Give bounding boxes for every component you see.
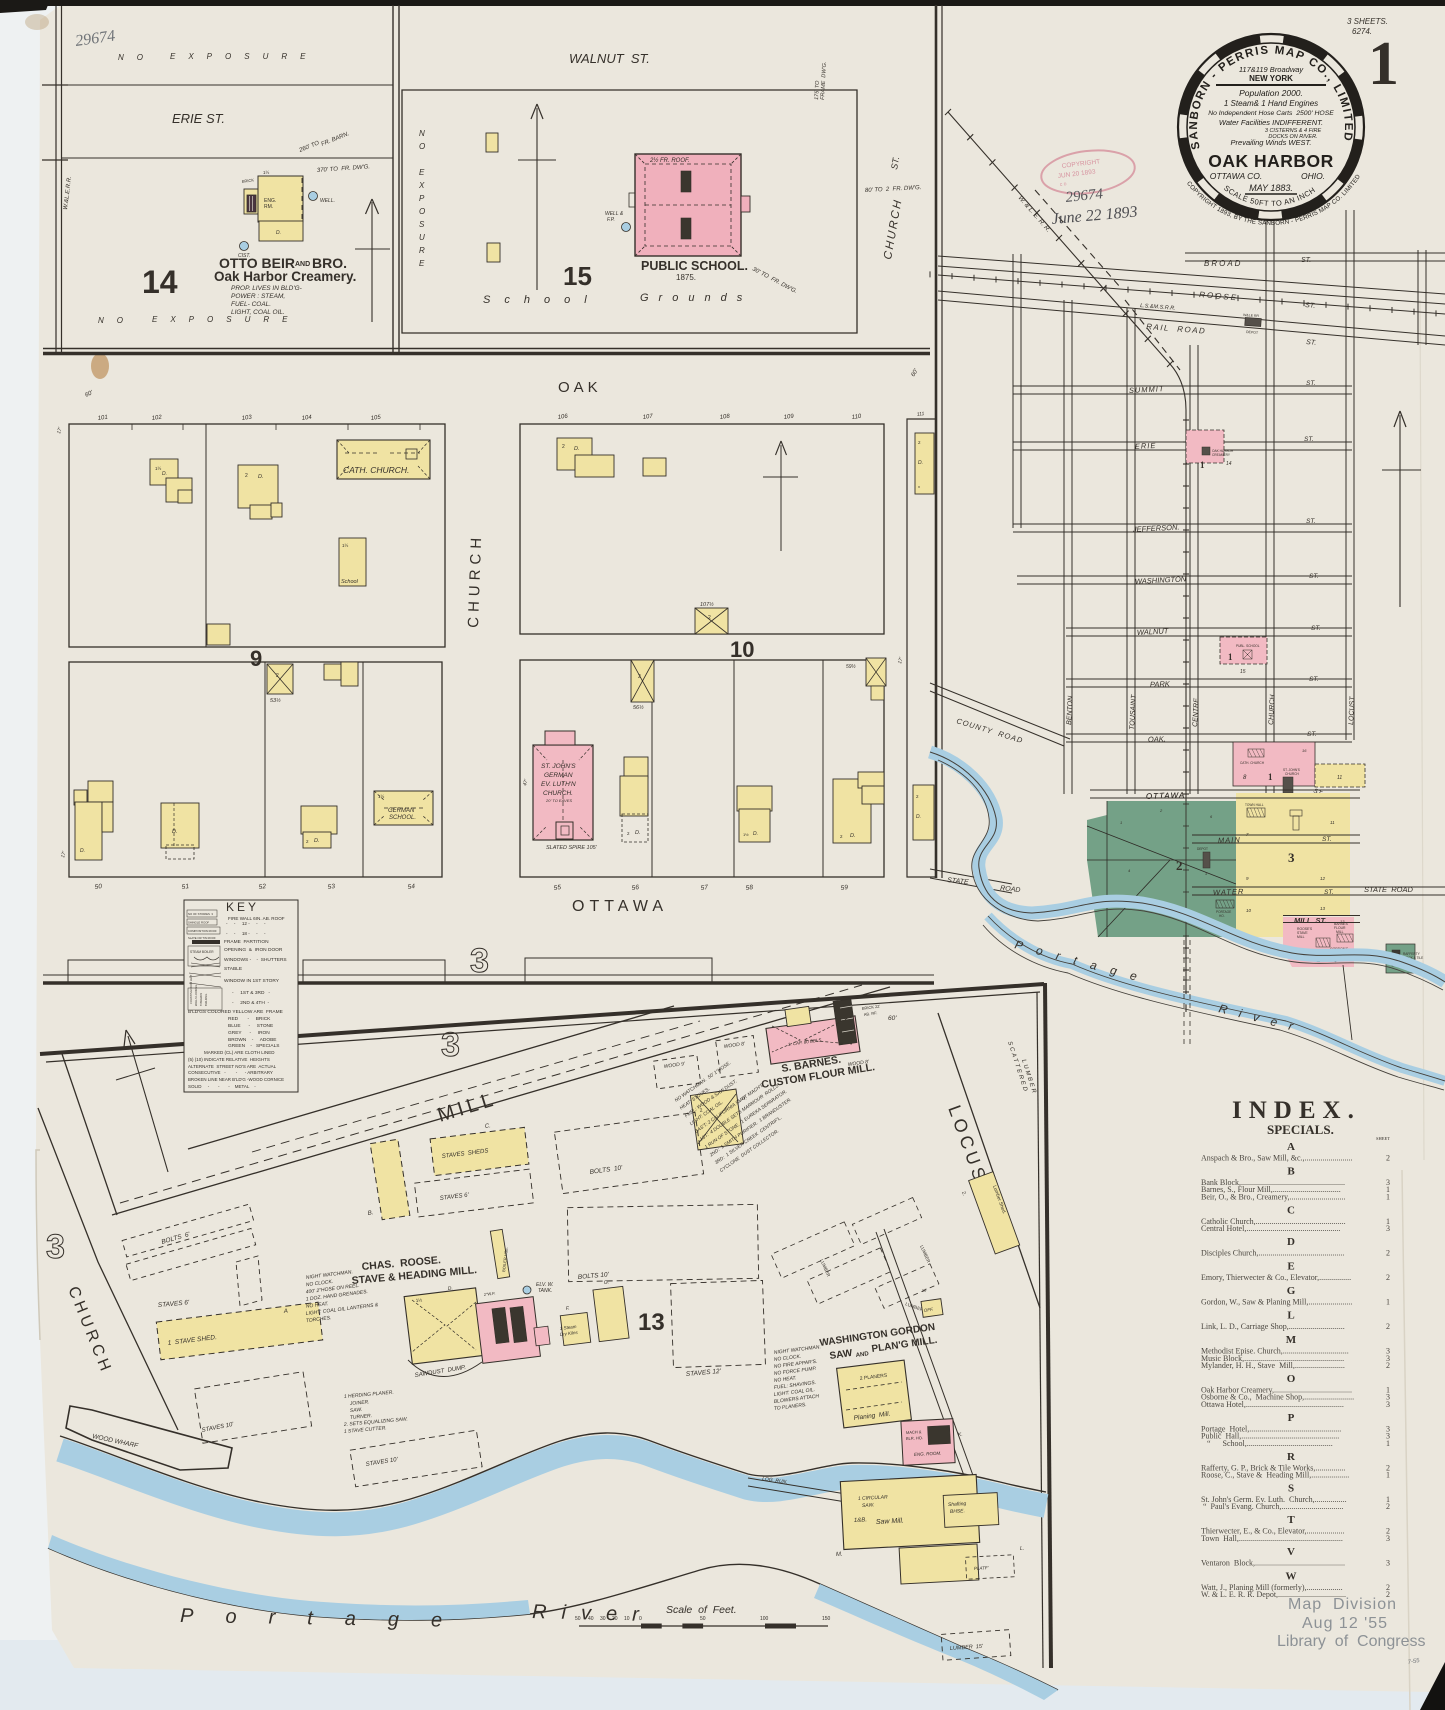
svg-text:0: 0 <box>639 1616 642 1622</box>
svg-text:Town Hall,...................: Town Hall,..............................… <box>1201 1534 1343 1543</box>
svg-text:WALNUT ST.: WALNUT ST. <box>569 51 650 66</box>
svg-text:30: 30 <box>600 1616 606 1622</box>
svg-text:COMPOSITION ROOF: COMPOSITION ROOF <box>188 929 217 933</box>
svg-text:54: 54 <box>407 883 416 891</box>
svg-text:Beir, O., & Bro., Creamery,...: Beir, O., & Bro., Creamery,.............… <box>1201 1192 1345 1201</box>
svg-text:15: 15 <box>563 261 592 291</box>
svg-text:Anspach & Bro., Saw Mill, &c.,: Anspach & Bro., Saw Mill, &c.,..........… <box>1201 1154 1353 1163</box>
svg-text:117&119 Broadway: 117&119 Broadway <box>1239 65 1305 74</box>
svg-text:O: O <box>419 207 425 216</box>
svg-text:NO: NO <box>98 316 136 325</box>
svg-text:2: 2 <box>638 674 641 680</box>
svg-text:10: 10 <box>730 637 754 662</box>
svg-text:OAK.: OAK. <box>1148 734 1166 744</box>
svg-text:E: E <box>419 168 425 177</box>
svg-text:M: M <box>1286 1334 1297 1346</box>
svg-text:A: A <box>283 1309 289 1316</box>
svg-text:D.: D. <box>574 446 580 452</box>
svg-text:13: 13 <box>638 1309 665 1336</box>
svg-text:Saw Mill.: Saw Mill. <box>876 1518 904 1526</box>
svg-text:BLUE - STONE: BLUE - STONE <box>228 1023 273 1029</box>
svg-text:10: 10 <box>624 1616 630 1622</box>
svg-text:E: E <box>419 259 425 268</box>
svg-text:100: 100 <box>760 1616 769 1622</box>
svg-text:Scale of Feet.: Scale of Feet. <box>666 1604 737 1616</box>
svg-text:ST.: ST. <box>1306 518 1316 525</box>
svg-text:School: School <box>341 579 359 585</box>
svg-text:PUBLIC SCHOOL.: PUBLIC SCHOOL. <box>641 259 748 273</box>
svg-text:150: 150 <box>822 1616 831 1622</box>
svg-text:1: 1 <box>1386 1439 1390 1448</box>
svg-text:14: 14 <box>1226 461 1232 467</box>
svg-text:1 Steam& 1 Hand Engines: 1 Steam& 1 Hand Engines <box>1224 99 1318 108</box>
svg-text:FRAME PARTITION: FRAME PARTITION <box>224 939 269 945</box>
svg-text:3: 3 <box>1386 1534 1390 1543</box>
svg-text:1½: 1½ <box>378 793 385 799</box>
svg-text:N: N <box>419 129 425 138</box>
svg-text:CHURCH.: CHURCH. <box>543 790 573 797</box>
svg-text:K.: K. <box>958 1432 963 1438</box>
svg-text:EXPOSURE: EXPOSURE <box>152 315 300 324</box>
svg-text:P: P <box>1288 1412 1295 1424</box>
svg-text:2: 2 <box>276 673 279 679</box>
svg-text:13: 13 <box>1340 919 1345 924</box>
svg-text:2: 2 <box>562 444 565 450</box>
svg-text:STEAM BOILER: STEAM BOILER <box>190 950 214 954</box>
svg-text:CATH. CHURCH: CATH. CHURCH <box>1240 761 1265 765</box>
svg-text:OHIO.: OHIO. <box>1301 171 1325 181</box>
svg-text:S: S <box>419 220 425 229</box>
svg-text:STATE ROAD: STATE ROAD <box>1364 885 1413 894</box>
svg-text:16: 16 <box>1302 748 1307 753</box>
svg-text:3: 3 <box>441 1026 460 1064</box>
svg-text:- 1ST & 3RD -: - 1ST & 3RD - <box>232 990 270 996</box>
svg-text:SPECIALS.: SPECIALS. <box>1267 1122 1334 1137</box>
svg-text:“ Paul's Evang. Church,......: “ Paul's Evang. Church,.................… <box>1201 1502 1343 1511</box>
svg-text:T: T <box>1287 1514 1295 1526</box>
svg-text:Ottawa Hotel,.................: Ottawa Hotel,...........................… <box>1201 1400 1344 1409</box>
svg-text:River: River <box>532 1601 654 1626</box>
svg-text:D.: D. <box>918 460 923 466</box>
svg-text:PLATF': PLATF' <box>974 1565 989 1571</box>
svg-text:Roose, C., Stave & Heading Mi: Roose, C., Stave & Heading Mill,........… <box>1201 1471 1349 1480</box>
svg-text:ST.: ST. <box>1306 380 1316 387</box>
svg-text:1875.: 1875. <box>676 273 696 282</box>
svg-text:CREAMERY: CREAMERY <box>1212 453 1231 457</box>
svg-text:M.: M. <box>836 1552 843 1558</box>
svg-text:GREEN - SPECIALS: GREEN - SPECIALS <box>228 1043 279 1049</box>
svg-text:Link, L. D., Carriage Shop,...: Link, L. D., Carriage Shop,.............… <box>1201 1322 1345 1331</box>
svg-text:Disciples Church,.............: Disciples Church,.......................… <box>1201 1249 1344 1258</box>
svg-text:B: B <box>1287 1166 1295 1178</box>
svg-text:1: 1 <box>1368 30 1399 98</box>
svg-text:WALLS LOOKING: WALLS LOOKING <box>194 985 198 1006</box>
svg-text:SLATE OR TIN ROOF: SLATE OR TIN ROOF <box>188 936 216 940</box>
svg-text:CONSECUTIVE - -: CONSECUTIVE - - - ARBITRARY <box>188 1070 273 1075</box>
svg-text:OTTAWA: OTTAWA <box>572 898 668 915</box>
svg-text:U: U <box>419 233 425 242</box>
svg-text:C.: C. <box>485 1123 492 1130</box>
svg-text:X: X <box>418 181 425 190</box>
svg-text:1½: 1½ <box>342 542 349 548</box>
svg-text:WATER: WATER <box>1213 887 1245 897</box>
svg-text:A: A <box>1287 1141 1295 1153</box>
svg-text:50: 50 <box>700 1616 706 1622</box>
svg-text:111: 111 <box>916 411 925 418</box>
svg-text:ST.: ST. <box>1304 436 1314 443</box>
svg-text:ERIE ST.: ERIE ST. <box>172 111 225 126</box>
svg-text:ST.: ST. <box>1309 573 1319 580</box>
svg-text:50: 50 <box>94 883 103 891</box>
svg-text:SAW.: SAW. <box>350 1407 363 1414</box>
svg-text:RED - BRICK: RED - BRICK <box>228 1016 271 1022</box>
svg-text:9: 9 <box>250 646 262 671</box>
svg-text:OAK: OAK <box>558 379 602 396</box>
svg-text:Aug 12 '55: Aug 12 '55 <box>1302 1615 1388 1632</box>
svg-text:Central Hotel,................: Central Hotel,..........................… <box>1201 1224 1340 1233</box>
svg-text:- - 18 - - -: - - 18 - - - <box>226 931 266 936</box>
svg-text:56: 56 <box>631 884 640 892</box>
svg-text:c o: c o <box>1060 181 1068 188</box>
svg-text:MARKED (CL) ARE CLOTH LINED: MARKED (CL) ARE CLOTH LINED <box>204 1050 275 1055</box>
svg-text:1½: 1½ <box>415 1296 422 1303</box>
svg-text:(5) (10) INDICATE RELATIVE HE: (5) (10) INDICATE RELATIVE HEIGHTS <box>188 1057 270 1062</box>
svg-text:1: 1 <box>1268 772 1273 782</box>
svg-text:10: 10 <box>1246 908 1252 913</box>
svg-text:50: 50 <box>575 1616 581 1622</box>
svg-text:BROAD: BROAD <box>1204 259 1242 268</box>
svg-text:2½ FR. ROOF.: 2½ FR. ROOF. <box>649 157 690 164</box>
svg-text:L.: L. <box>1020 1546 1024 1552</box>
svg-text:ST.: ST. <box>1306 339 1317 347</box>
svg-text:ST.: ST. <box>1324 889 1334 896</box>
svg-text:Ventaron Block,..............: Ventaron Block,.........................… <box>1201 1558 1345 1567</box>
svg-text:Oak Harbor Creamery.: Oak Harbor Creamery. <box>214 269 356 284</box>
svg-text:3: 3 <box>1386 1224 1390 1233</box>
svg-text:G: G <box>1287 1285 1296 1297</box>
svg-text:E: E <box>1287 1261 1294 1273</box>
svg-text:MILL: MILL <box>1336 930 1344 934</box>
svg-text:ST.: ST. <box>1311 625 1321 632</box>
svg-text:- - 12 - - -: - - 12 - - - <box>226 921 266 926</box>
svg-text:WINDOWS - - SHUTTERS: WINDOWS - - SHUTTERS <box>224 957 287 963</box>
svg-text:2: 2 <box>245 473 248 479</box>
svg-text:OPENING & IRON DOOR: OPENING & IRON DOOR <box>224 947 283 953</box>
svg-text:NO OF STORIES 3: NO OF STORIES 3 <box>188 912 213 916</box>
svg-text:D.: D. <box>916 814 921 820</box>
svg-text:14: 14 <box>142 264 178 300</box>
svg-text:SOLID - - -: SOLID - - - METAL - <box>188 1084 256 1089</box>
svg-text:D.: D. <box>753 831 758 837</box>
svg-text:Mylander, H. H., Stave Mill,.: Mylander, H. H., Stave Mill,............… <box>1201 1361 1345 1370</box>
svg-text:1½: 1½ <box>743 832 749 837</box>
svg-text:R: R <box>1287 1451 1296 1463</box>
svg-text:School: School <box>483 294 601 306</box>
svg-text:D.: D. <box>314 838 320 844</box>
svg-text:56½: 56½ <box>633 704 644 711</box>
svg-text:O: O <box>419 142 425 151</box>
svg-text:NEW YORK: NEW YORK <box>1249 74 1293 83</box>
svg-text:OAK HARBOR: OAK HARBOR <box>1208 151 1334 171</box>
svg-text:Library of Congress: Library of Congress <box>1277 1633 1426 1650</box>
svg-text:BHSE.: BHSE. <box>950 1508 965 1515</box>
svg-text:FUEL- COAL.: FUEL- COAL. <box>231 301 271 308</box>
svg-text:Water Facilities INDIFFERENT.: Water Facilities INDIFFERENT. <box>1219 118 1323 127</box>
svg-text:12: 12 <box>1320 876 1326 881</box>
svg-text:58: 58 <box>745 884 754 892</box>
svg-text:59½: 59½ <box>846 663 857 670</box>
svg-text:V: V <box>1287 1546 1295 1558</box>
svg-text:51: 51 <box>181 883 190 891</box>
svg-text:MAY 1883.: MAY 1883. <box>1249 183 1293 193</box>
svg-text:B.: B. <box>367 1210 374 1217</box>
svg-text:- 2ND & 4TH -: - 2ND & 4TH - <box>232 1000 269 1006</box>
svg-text:STABLE: STABLE <box>224 966 242 972</box>
svg-text:NO: NO <box>118 53 156 62</box>
svg-text:20: 20 <box>612 1616 618 1622</box>
svg-text:TOWARDS: TOWARDS <box>199 993 203 1006</box>
svg-text:Map Division: Map Division <box>1288 1596 1397 1613</box>
svg-text:SHEET: SHEET <box>1376 1136 1390 1141</box>
svg-text:BROKEN LINE NEAR B'LD'G -WOOD: BROKEN LINE NEAR B'LD'G -WOOD CORNICE <box>188 1077 284 1082</box>
svg-text:x: x <box>918 484 920 489</box>
svg-text:2: 2 <box>1386 1502 1390 1511</box>
svg-text:L: L <box>1287 1310 1294 1322</box>
svg-text:PUBL. SCHOOL: PUBL. SCHOOL <box>1236 644 1260 648</box>
svg-text:3: 3 <box>1386 1400 1390 1409</box>
svg-text:D.: D. <box>80 848 85 854</box>
svg-text:53: 53 <box>327 883 336 891</box>
svg-text:20' TO EAVES: 20' TO EAVES <box>545 798 572 803</box>
svg-text:1½: 1½ <box>155 465 162 471</box>
svg-text:13: 13 <box>1320 906 1326 911</box>
svg-text:BLR. HO.: BLR. HO. <box>906 1435 923 1441</box>
svg-text:40: 40 <box>588 1616 594 1622</box>
svg-text:R: R <box>419 246 425 255</box>
svg-text:CATH. CHURCH.: CATH. CHURCH. <box>343 465 409 475</box>
svg-text:1½: 1½ <box>263 169 270 175</box>
svg-text:2: 2 <box>1386 1249 1390 1258</box>
svg-text:1: 1 <box>1386 1471 1390 1480</box>
svg-text:2: 2 <box>1386 1361 1390 1370</box>
svg-text:ERIE: ERIE <box>1135 441 1157 451</box>
svg-text:55: 55 <box>553 884 562 892</box>
svg-text:SAW.: SAW. <box>862 1502 875 1509</box>
svg-text:D.: D. <box>172 829 178 835</box>
svg-text:Population 2000.: Population 2000. <box>1239 88 1303 98</box>
svg-text:SUMMIT: SUMMIT <box>1129 384 1165 395</box>
svg-text:57: 57 <box>700 884 709 892</box>
svg-text:15: 15 <box>1240 669 1246 675</box>
svg-text:W: W <box>1286 1570 1297 1582</box>
svg-text:ST.: ST. <box>1322 836 1332 843</box>
svg-text:COUNTING FROM LEFT: COUNTING FROM LEFT <box>189 974 193 1004</box>
svg-text:107½: 107½ <box>700 601 714 608</box>
svg-text:Grounds: Grounds <box>640 292 752 304</box>
svg-text:No Independent Hose Carts 250: No Independent Hose Carts 2500' HOSE <box>1208 110 1334 117</box>
svg-text:ST.: ST. <box>1309 676 1319 683</box>
svg-text:WINDOW IN 1ST STORY: WINDOW IN 1ST STORY <box>224 978 280 984</box>
svg-text:Shafting: Shafting <box>948 1501 967 1508</box>
svg-text:D.: D. <box>448 1285 454 1292</box>
svg-text:59: 59 <box>840 884 849 892</box>
svg-text:SHINGLE ROOF: SHINGLE ROOF <box>188 921 209 925</box>
svg-text:OTTAWA CO.: OTTAWA CO. <box>1210 171 1263 181</box>
svg-text:GREY - IRON: GREY - IRON <box>228 1030 270 1036</box>
svg-text:2: 2 <box>708 615 711 621</box>
svg-text:POWER : STEAM,: POWER : STEAM, <box>231 293 285 300</box>
svg-text:EXPOSURE: EXPOSURE <box>170 52 318 61</box>
svg-text:1: 1 <box>1228 652 1233 662</box>
svg-text:D.: D. <box>850 833 856 839</box>
svg-text:CHURCH: CHURCH <box>465 533 485 629</box>
svg-text:2: 2 <box>1386 1322 1390 1331</box>
svg-text:3: 3 <box>1288 850 1295 865</box>
svg-text:S: S <box>1288 1483 1294 1495</box>
svg-text:TOWN HALL: TOWN HALL <box>1245 803 1264 807</box>
svg-text:HO.: HO. <box>1219 914 1225 918</box>
svg-text:“ School,................: “ School,...............................… <box>1201 1439 1333 1448</box>
svg-text:1&B.: 1&B. <box>854 1517 867 1524</box>
svg-text:BUILDING: BUILDING <box>204 994 208 1006</box>
svg-text:SLATED SPIRE 105': SLATED SPIRE 105' <box>546 845 598 851</box>
svg-text:1: 1 <box>1386 1298 1390 1307</box>
svg-text:ST. JOHN'S: ST. JOHN'S <box>541 763 576 770</box>
svg-text:ALTERNATE STREET NO'S ARE AC: ALTERNATE STREET NO'S ARE ACTUAL <box>188 1064 277 1069</box>
svg-text:Emory, Thierwecter & Co., Elev: Emory, Thierwecter & Co., Elevator,.....… <box>1201 1273 1351 1282</box>
svg-text:D.: D. <box>276 230 281 236</box>
svg-text:10': 10' <box>921 1287 927 1293</box>
svg-text:MILL: MILL <box>1297 935 1305 939</box>
svg-text:1: 1 <box>1200 460 1205 470</box>
svg-text:AND: AND <box>295 261 310 268</box>
svg-text:CHURCH: CHURCH <box>1285 772 1300 776</box>
svg-text:11: 11 <box>1337 775 1342 781</box>
svg-text:MILL ST.: MILL ST. <box>1294 916 1327 925</box>
svg-text:PARK: PARK <box>1150 679 1171 689</box>
svg-text:O: O <box>1287 1373 1296 1385</box>
svg-text:D: D <box>1287 1236 1295 1248</box>
svg-text:DEPOT: DEPOT <box>1197 847 1208 851</box>
svg-text:OTTAWA: OTTAWA <box>1146 791 1186 801</box>
svg-text:C: C <box>1287 1204 1295 1216</box>
svg-text:P: P <box>419 194 425 203</box>
svg-text:ST.: ST. <box>1301 257 1311 264</box>
svg-text:Prevailing Winds WEST.: Prevailing Winds WEST. <box>1231 138 1312 147</box>
svg-text:MAIN: MAIN <box>1218 835 1241 845</box>
svg-text:11: 11 <box>1330 820 1335 825</box>
svg-text:GERMAN: GERMAN <box>544 772 573 779</box>
svg-text:MACH &: MACH & <box>906 1429 922 1435</box>
svg-text:BROWN - ADOBE: BROWN - ADOBE <box>228 1037 277 1043</box>
svg-text:Gordon, W., Saw & Planing Mill: Gordon, W., Saw & Planing Mill,.........… <box>1201 1298 1352 1307</box>
svg-text:WELL.: WELL. <box>320 198 335 204</box>
svg-text:KEY: KEY <box>226 900 259 914</box>
svg-text:SCHOOL.: SCHOOL. <box>389 815 416 821</box>
svg-text:1: 1 <box>1386 1192 1390 1201</box>
svg-text:G.: G. <box>604 1279 610 1286</box>
svg-text:D.: D. <box>258 474 264 480</box>
svg-text:GERMAN: GERMAN <box>388 808 415 814</box>
svg-text:53½: 53½ <box>270 697 281 704</box>
svg-text:RM.: RM. <box>264 204 273 210</box>
svg-text:2: 2 <box>1386 1154 1390 1163</box>
svg-text:D.: D. <box>635 830 641 836</box>
svg-text:52: 52 <box>258 883 267 891</box>
svg-text:2: 2 <box>1176 858 1183 873</box>
svg-text:INDEX.: INDEX. <box>1232 1097 1361 1124</box>
svg-text:ST.: ST. <box>1307 731 1317 738</box>
svg-text:PROP. LIVES IN BLD'G-: PROP. LIVES IN BLD'G- <box>231 285 303 292</box>
svg-text:2: 2 <box>1386 1273 1390 1282</box>
svg-text:D.: D. <box>162 471 167 477</box>
svg-text:60': 60' <box>888 1015 897 1022</box>
svg-text:EV. LUTH'N: EV. LUTH'N <box>541 781 576 788</box>
svg-text:3 SHEETS.: 3 SHEETS. <box>1347 17 1388 26</box>
svg-text:3: 3 <box>46 1228 65 1266</box>
svg-text:3: 3 <box>1386 1558 1390 1567</box>
svg-text:3: 3 <box>470 942 489 980</box>
svg-text:F.P.: F.P. <box>607 217 615 223</box>
svg-text:1: 1 <box>1120 820 1122 825</box>
svg-text:TANK.: TANK. <box>538 1288 552 1294</box>
svg-text:WALNUT: WALNUT <box>1137 626 1170 637</box>
